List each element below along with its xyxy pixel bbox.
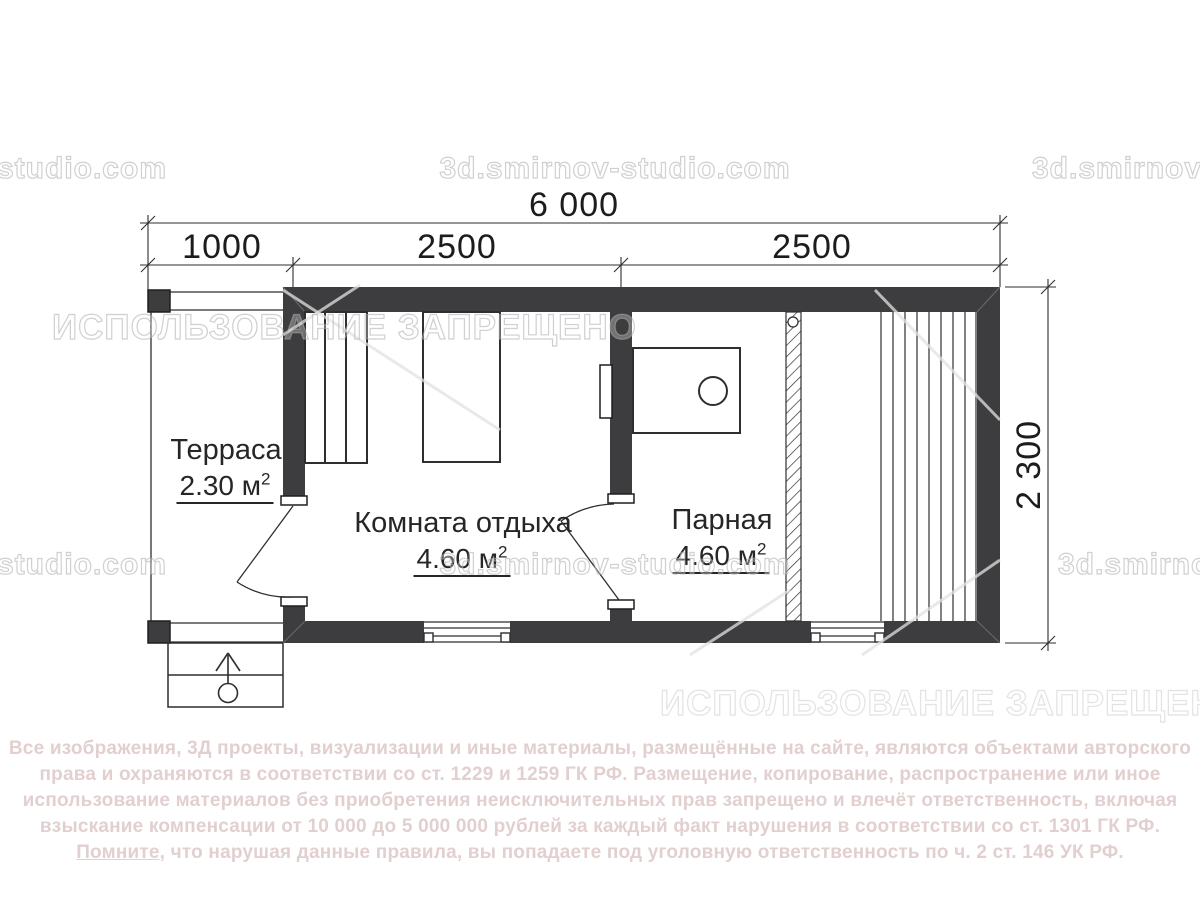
watermark-forbidden-top: ИСПОЛЬЗОВАНИЕ ЗАПРЕЩЕНО xyxy=(52,308,637,348)
dim-segment-2500-left: 2500 xyxy=(417,228,497,267)
entrance-porch xyxy=(168,643,283,707)
lounge-label: Комната отдыха xyxy=(354,507,572,540)
sauna-benches xyxy=(881,312,976,621)
watermark-site-left-top: -studio.com xyxy=(0,152,167,186)
stove-feed-hatch xyxy=(600,365,612,418)
terrace-label: Терраса xyxy=(170,434,281,467)
terrace-area: 2.30 м2 xyxy=(177,470,274,504)
copyright-line: использование материалов без приобретени… xyxy=(0,788,1200,814)
dim-segment-1000: 1000 xyxy=(182,228,262,267)
watermark-site-right-top: 3d.smirnov- xyxy=(1032,152,1200,186)
copyright-line: права и охраняются в соответствии со ст.… xyxy=(0,762,1200,788)
copyright-line: взыскание компенсации от 10 000 до 5 000… xyxy=(0,814,1200,840)
watermark-forbidden-bottom: ИСПОЛЬЗОВАНИЕ ЗАПРЕЩЕНО xyxy=(660,684,1200,724)
dim-depth: 2 300 xyxy=(1010,395,1052,535)
window-room2 xyxy=(811,622,884,642)
terrace-door-swing xyxy=(237,506,293,597)
floor-plan-page: 6 000 1000 2500 2500 2 300 Терраса 2.30 … xyxy=(0,0,1200,900)
copyright-line: Все изображения, 3Д проекты, визуализаци… xyxy=(0,736,1200,762)
watermark-site-center-top: 3d.smirnov-studio.com xyxy=(439,152,790,186)
dim-total-width: 6 000 xyxy=(529,186,619,225)
steam-room-label: Парная xyxy=(672,504,773,537)
dimension-lines xyxy=(140,215,1056,651)
copyright-line: Помните, что нарушая данные правила, вы … xyxy=(0,840,1200,866)
sauna-stove xyxy=(633,348,740,433)
watermark-site-center-mid: 3d.smirnov-studio.com xyxy=(439,548,790,582)
dim-segment-2500-right: 2500 xyxy=(772,228,852,267)
watermark-site-right-mid: 3d.smirnov- xyxy=(1058,548,1200,582)
copyright-notice: Все изображения, 3Д проекты, визуализаци… xyxy=(0,736,1200,866)
entrance-arrow-icon xyxy=(216,653,240,703)
watermark-site-left-mid: -studio.com xyxy=(0,548,167,582)
window-room1 xyxy=(424,622,510,642)
